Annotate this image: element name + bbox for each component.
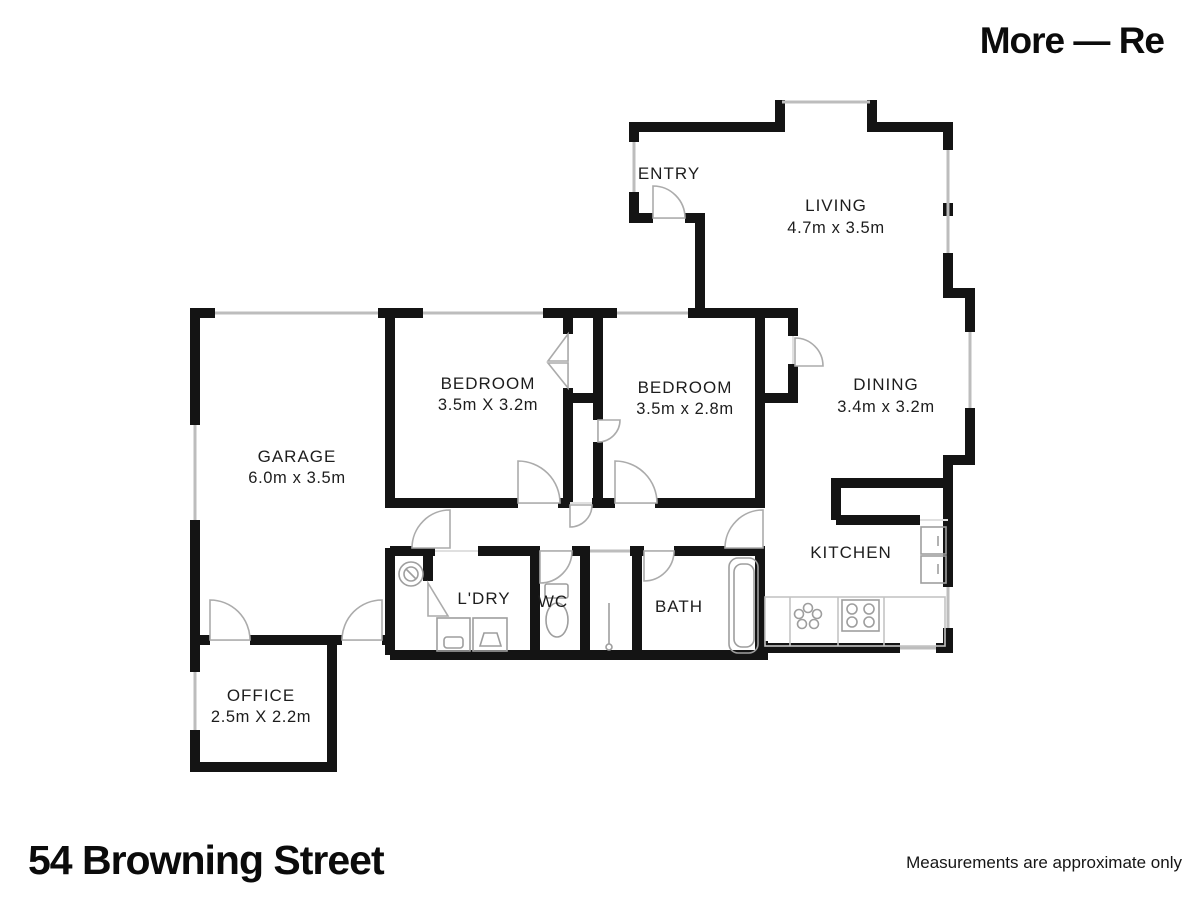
dryer-icon [480,633,501,646]
bedroom2-door-arc [615,461,657,503]
room-dims-office: 2.5m X 2.2m [211,708,311,726]
room-label-wc: WC [538,592,568,611]
laundry-door-leaf [428,583,448,616]
hall-closet-door-arc [795,338,823,366]
room-dims-bedroom2: 3.5m x 2.8m [636,400,733,418]
room-label-garage: GARAGE [258,447,337,466]
wc-door-arc [540,551,572,583]
room-label-bedroom1: BEDROOM [441,374,536,393]
room-label-office: OFFICE [227,686,295,705]
garage-office-door-arc [210,600,250,640]
bedroom1-door-arc [518,461,560,503]
room-dims-living: 4.7m x 3.5m [787,219,884,237]
corridor-east-door-arc [725,510,763,548]
cooktop-icon [864,604,874,614]
bedroom2-closet-door-arc [598,420,620,442]
bedroom1-closet-bifold-icon [548,363,568,388]
room-dims-dining: 3.4m x 3.2m [837,398,934,416]
kitchen-sink-icon [921,556,946,583]
cooktop-icon [847,617,857,627]
entry-door-arc [653,186,685,218]
room-label-entry: ENTRY [638,164,700,183]
washer-icon [444,637,463,648]
room-label-dining: DINING [853,375,919,394]
wall-kitchen-north [836,478,948,520]
bathtub-icon [734,564,754,647]
room-dims-garage: 6.0m x 3.5m [248,469,345,487]
floorplan-page: More — Re [0,0,1200,900]
linen-closet-door-arc [570,505,592,527]
sink-flower-icon [795,604,822,629]
shower-icon [606,644,612,650]
room-label-kitchen: KITCHEN [810,543,892,562]
bath-door-arc [644,551,674,581]
garage-rear-door-arc [342,600,382,640]
bedroom1-closet-bifold-icon [548,334,568,361]
corridor-west-door-arc [412,510,450,548]
room-label-laundry: L'DRY [457,589,510,608]
laundry-tub-icon [406,569,416,579]
cooktop-icon [842,600,879,631]
washer-icon [437,618,470,651]
kitchen-sink-icon [921,527,946,554]
wall-entry [629,122,780,318]
room-dims-bedroom1: 3.5m X 3.2m [438,396,538,414]
floor-plan: ENTRY LIVING 4.7m x 3.5m DINING 3.4m x 3… [0,0,1200,900]
room-label-living: LIVING [805,196,867,215]
room-label-bedroom2: BEDROOM [638,378,733,397]
property-address: 54 Browning Street [28,837,384,884]
cooktop-icon [864,617,874,627]
measurements-disclaimer: Measurements are approximate only [906,853,1182,873]
cooktop-icon [847,604,857,614]
room-label-bath: BATH [655,597,703,616]
